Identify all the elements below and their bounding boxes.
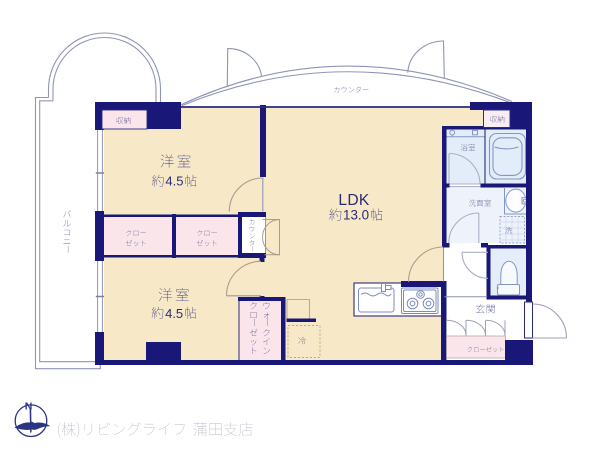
svg-text:4.5: 4.5 [165,174,183,189]
svg-text:13.0: 13.0 [343,208,369,223]
svg-text:4.5: 4.5 [165,306,183,321]
svg-text:N: N [25,400,33,412]
